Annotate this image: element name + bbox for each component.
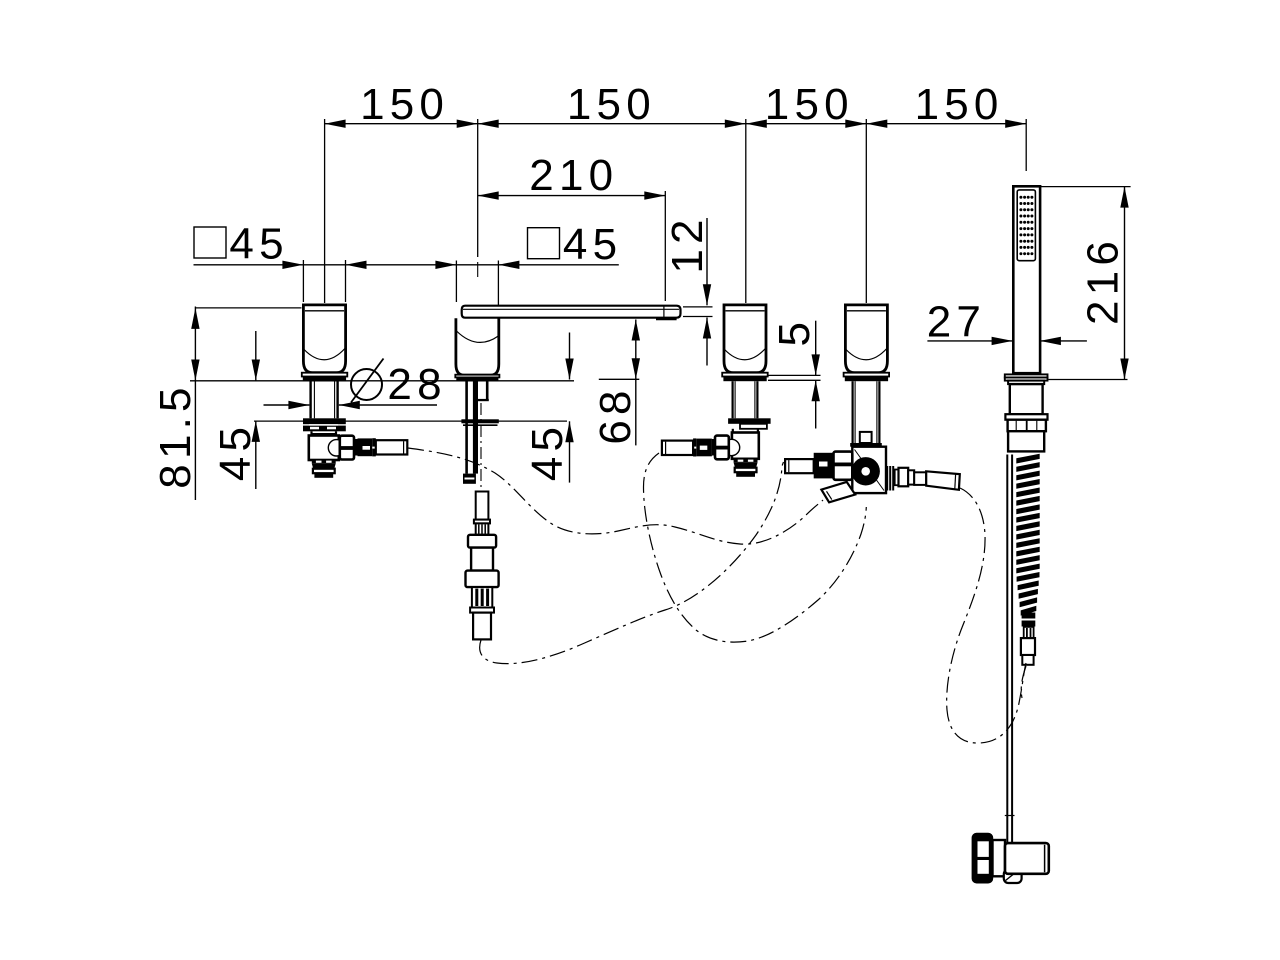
svg-text:68: 68	[591, 385, 640, 444]
svg-text:216: 216	[1079, 236, 1128, 325]
svg-text:150: 150	[567, 80, 656, 129]
svg-text:45: 45	[563, 220, 622, 269]
svg-text:210: 210	[529, 151, 618, 200]
svg-text:150: 150	[915, 80, 1004, 129]
svg-text:150: 150	[360, 80, 449, 129]
svg-text:45: 45	[229, 220, 288, 269]
svg-text:45: 45	[211, 422, 260, 481]
svg-text:5: 5	[770, 317, 819, 347]
svg-text:12: 12	[663, 214, 712, 273]
svg-text:27: 27	[927, 298, 986, 347]
svg-text:81.5: 81.5	[151, 382, 200, 488]
svg-text:45: 45	[523, 422, 572, 481]
svg-text:150: 150	[765, 80, 854, 129]
svg-text:28: 28	[387, 360, 446, 409]
